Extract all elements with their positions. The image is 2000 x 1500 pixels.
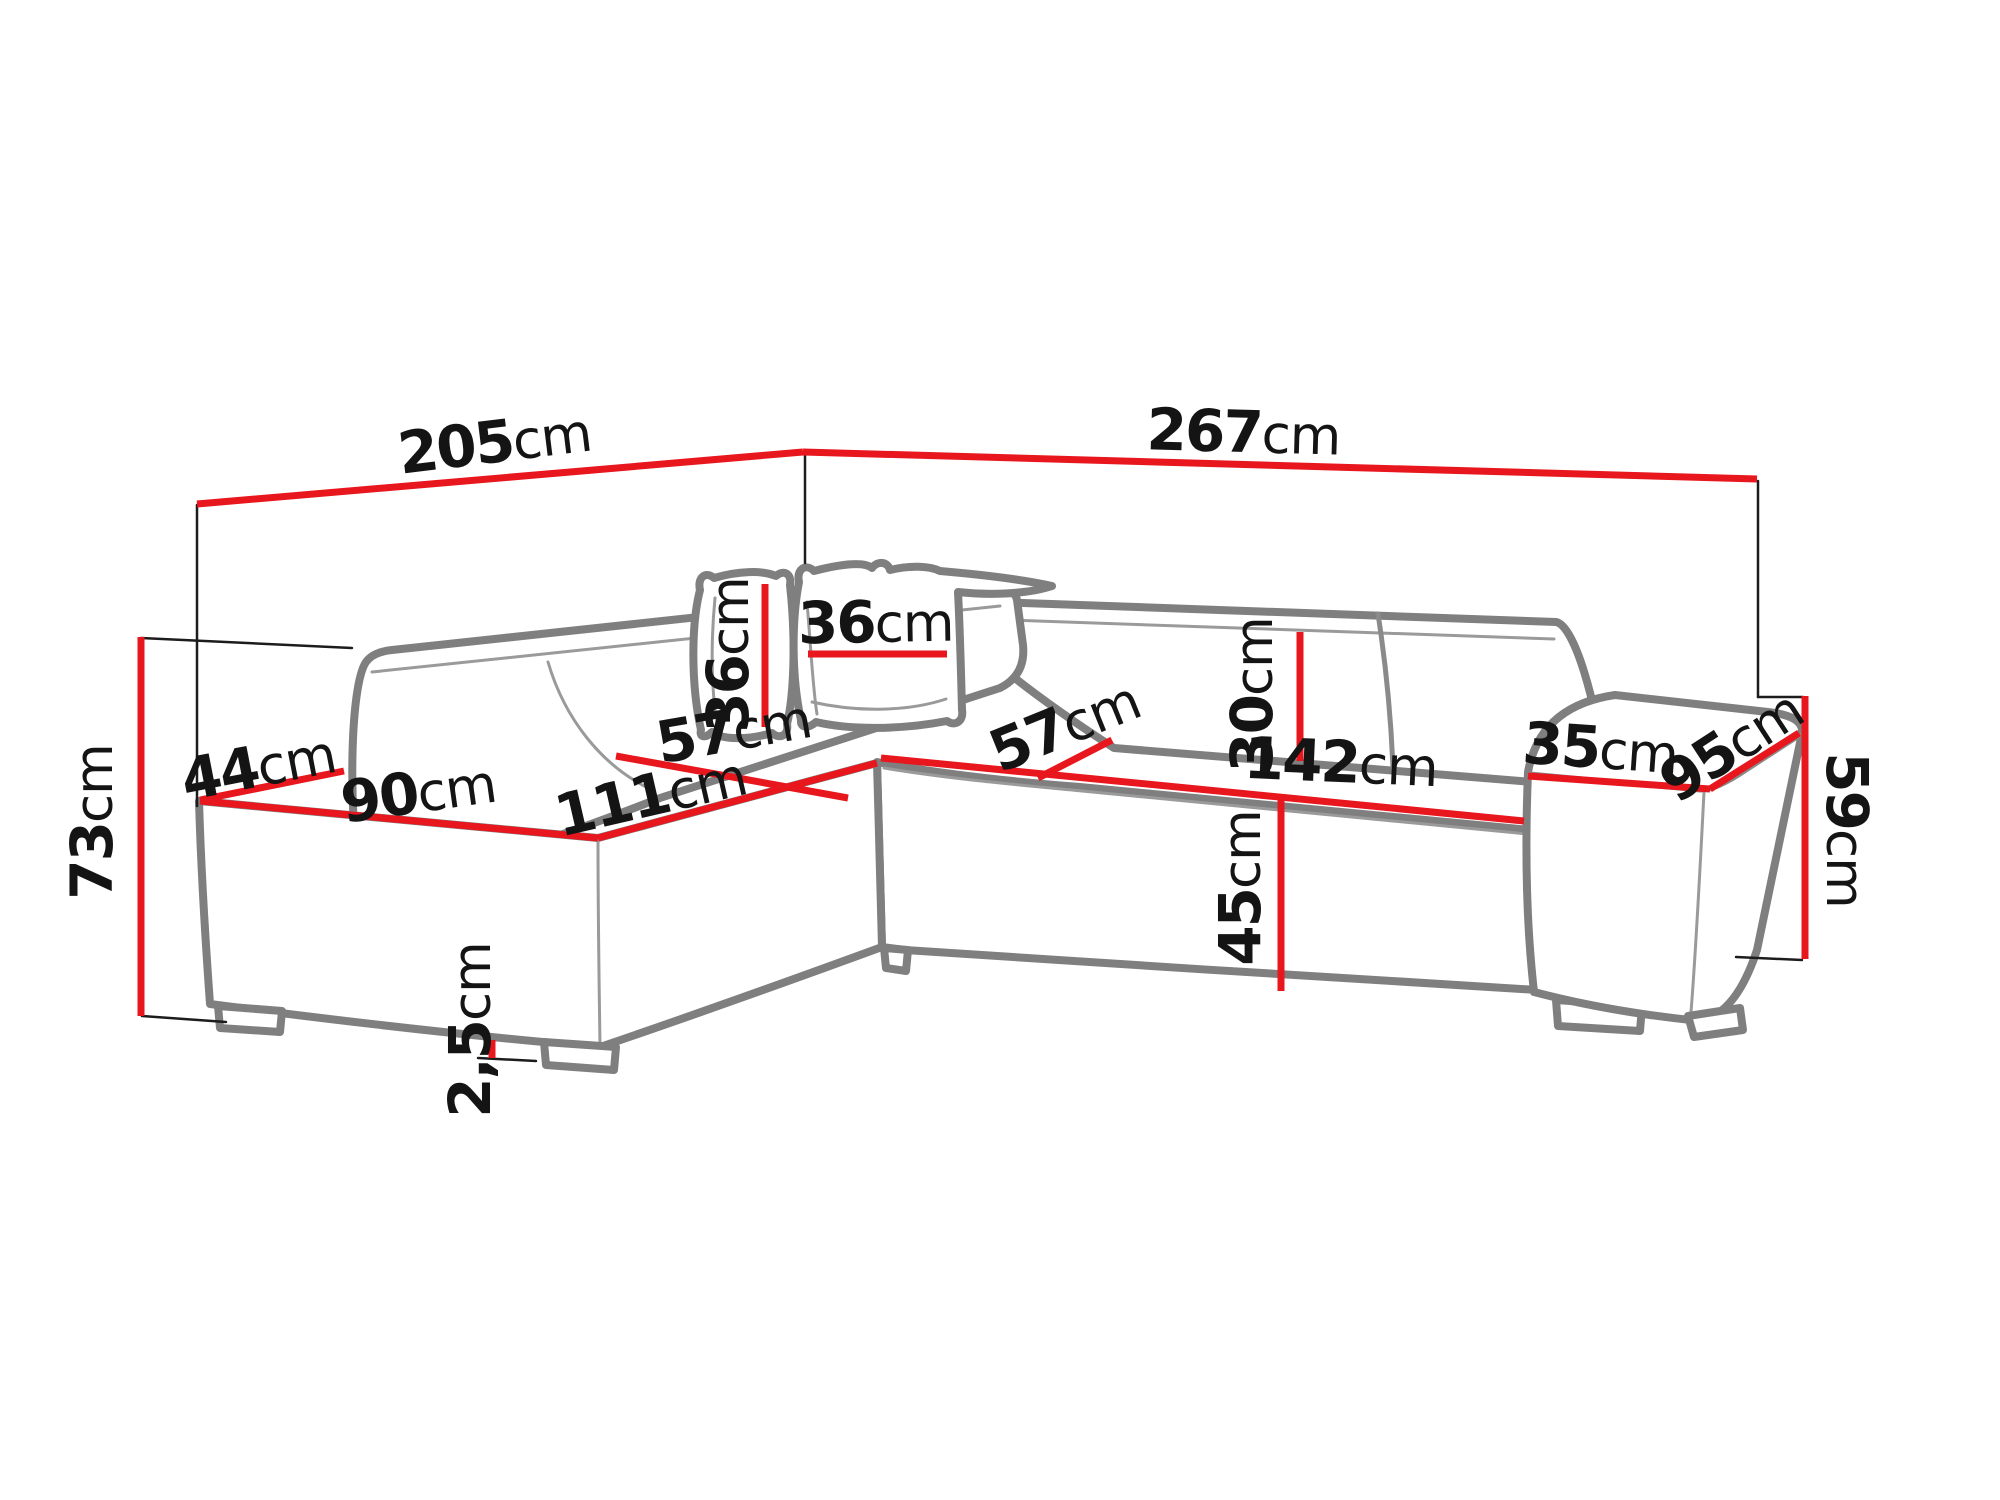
label-back-right-width: 267cm xyxy=(1146,395,1342,468)
label-pillow-width: 36cm xyxy=(797,587,954,658)
label-left-arm-top-depth: 44cm xyxy=(175,718,341,814)
label-right-arm-height: 59cm xyxy=(1813,752,1881,908)
corner-foot xyxy=(884,948,908,971)
label-total-height: 73cm xyxy=(58,744,126,900)
pouf-foot xyxy=(1688,1008,1743,1037)
chaise-back-foot xyxy=(218,1006,282,1032)
chaise-front-foot xyxy=(544,1042,616,1070)
label-pillow-height: 36cm xyxy=(694,577,762,733)
ext-height-top xyxy=(141,638,352,648)
ext-height-bottom xyxy=(142,1016,226,1022)
sofa-dimension-diagram: 205cm 267cm 73cm 44cm 90cm 111cm 57cm 36… xyxy=(0,0,2000,1500)
label-leg-height: 2,5cm xyxy=(436,942,504,1118)
label-seat-front-height: 45cm xyxy=(1206,810,1274,966)
